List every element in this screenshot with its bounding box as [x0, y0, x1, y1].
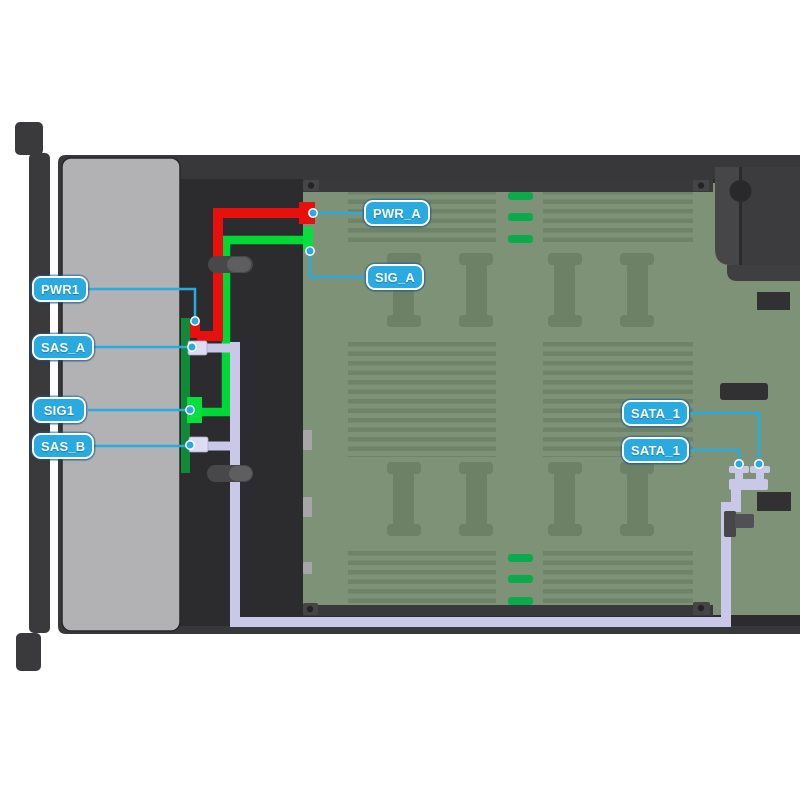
diagram-canvas: PWR_A SIG_A PWR1 SAS_A SIG1 SAS_B SATA_1…: [0, 0, 800, 807]
callout-label-sig1: SIG1: [32, 397, 86, 423]
dimm-slots: [348, 551, 496, 605]
callout-label-pwr-a: PWR_A: [364, 200, 430, 226]
dimm-slots: [348, 338, 496, 457]
callout-label-pwr1: PWR1: [32, 276, 88, 302]
callout-dot: [186, 441, 194, 449]
callout-dot: [306, 247, 314, 255]
psu-thumbscrew: [730, 180, 752, 202]
callout-dot: [309, 209, 317, 217]
dimm-slots: [543, 551, 693, 605]
callout-label-sig-a: SIG_A: [366, 264, 424, 290]
cable-clamp: [207, 465, 253, 482]
callout-dot: [186, 406, 194, 414]
callout-dot: [735, 460, 743, 468]
callout-dot: [755, 460, 763, 468]
callout-label-sas-a: SAS_A: [32, 334, 94, 360]
psu-block: [715, 167, 800, 281]
dimm-slots: [543, 189, 693, 245]
callout-label-sata-1-lower: SATA_1: [622, 437, 689, 463]
callout-label-sata-1-upper: SATA_1: [622, 400, 689, 426]
cable-clamp: [208, 256, 253, 273]
callout-dot: [191, 317, 199, 325]
board-top-bar: [303, 179, 713, 192]
drive-bay: [62, 158, 180, 631]
callout-label-sas-b: SAS_B: [32, 433, 94, 459]
callout-dot: [188, 343, 196, 351]
